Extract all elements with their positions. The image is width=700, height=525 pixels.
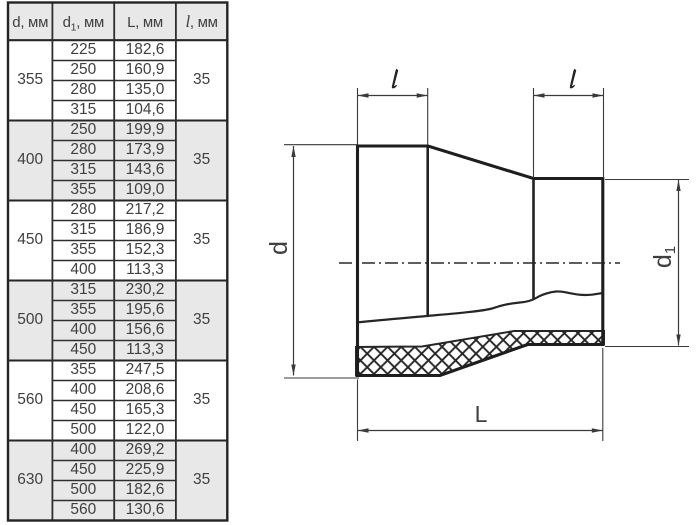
svg-text:400: 400 (70, 381, 96, 398)
svg-text:35: 35 (193, 471, 210, 488)
svg-text:450: 450 (17, 231, 43, 248)
svg-text:560: 560 (70, 501, 96, 518)
svg-text:135,0: 135,0 (126, 81, 165, 98)
svg-text:35: 35 (193, 151, 210, 168)
svg-text:630: 630 (17, 471, 43, 488)
svg-text:450: 450 (70, 401, 96, 418)
svg-text:450: 450 (70, 341, 96, 358)
svg-text:152,3: 152,3 (126, 241, 165, 258)
svg-text:195,6: 195,6 (126, 301, 165, 318)
svg-text:L: L (475, 401, 488, 427)
svg-text:156,6: 156,6 (126, 321, 165, 338)
svg-text:182,6: 182,6 (126, 41, 165, 58)
svg-text:217,2: 217,2 (126, 201, 165, 218)
svg-text:315: 315 (70, 161, 96, 178)
svg-text:250: 250 (70, 61, 96, 78)
svg-text:280: 280 (70, 201, 96, 218)
svg-text:269,2: 269,2 (126, 441, 165, 458)
svg-text:400: 400 (17, 151, 43, 168)
svg-text:122,0: 122,0 (126, 421, 165, 438)
svg-text:355: 355 (70, 241, 96, 258)
svg-text:173,9: 173,9 (126, 141, 165, 158)
svg-text:355: 355 (70, 361, 96, 378)
svg-text:35: 35 (193, 71, 210, 88)
svg-text:225: 225 (70, 41, 96, 58)
svg-text:109,0: 109,0 (126, 181, 165, 198)
svg-text:400: 400 (70, 321, 96, 338)
svg-text:315: 315 (70, 221, 96, 238)
svg-text:315: 315 (70, 101, 96, 118)
svg-text:230,2: 230,2 (126, 281, 165, 298)
svg-text:280: 280 (70, 141, 96, 158)
svg-text:d: d (265, 241, 293, 255)
svg-text:L, мм: L, мм (127, 14, 163, 31)
svg-text:186,9: 186,9 (126, 221, 165, 238)
svg-text:l, мм: l, мм (185, 12, 217, 31)
svg-text:315: 315 (70, 281, 96, 298)
svg-text:35: 35 (193, 391, 210, 408)
svg-text:130,6: 130,6 (126, 501, 165, 518)
svg-text:355: 355 (70, 301, 96, 318)
svg-text:450: 450 (70, 461, 96, 478)
svg-text:247,5: 247,5 (126, 361, 165, 378)
svg-text:160,9: 160,9 (126, 61, 165, 78)
svg-text:250: 250 (70, 121, 96, 138)
svg-text:113,3: 113,3 (126, 261, 164, 278)
svg-text:35: 35 (193, 311, 210, 328)
svg-text:208,6: 208,6 (126, 381, 165, 398)
svg-text:355: 355 (70, 181, 96, 198)
svg-text:560: 560 (17, 391, 43, 408)
svg-text:182,6: 182,6 (126, 481, 165, 498)
svg-text:500: 500 (70, 481, 96, 498)
svg-text:104,6: 104,6 (126, 101, 165, 118)
svg-text:280: 280 (70, 81, 96, 98)
svg-text:225,9: 225,9 (126, 461, 165, 478)
svg-text:35: 35 (193, 231, 210, 248)
svg-text:d1, мм: d1, мм (63, 14, 104, 34)
svg-text:355: 355 (17, 71, 43, 88)
svg-text:165,3: 165,3 (126, 401, 165, 418)
svg-text:500: 500 (70, 421, 96, 438)
svg-text:500: 500 (17, 311, 43, 328)
svg-text:400: 400 (70, 441, 96, 458)
svg-text:199,9: 199,9 (126, 121, 165, 138)
svg-text:d1: d1 (649, 246, 679, 268)
svg-text:400: 400 (70, 261, 96, 278)
svg-text:d, мм: d, мм (12, 14, 48, 31)
svg-text:113,3: 113,3 (126, 341, 164, 358)
svg-text:143,6: 143,6 (126, 161, 165, 178)
